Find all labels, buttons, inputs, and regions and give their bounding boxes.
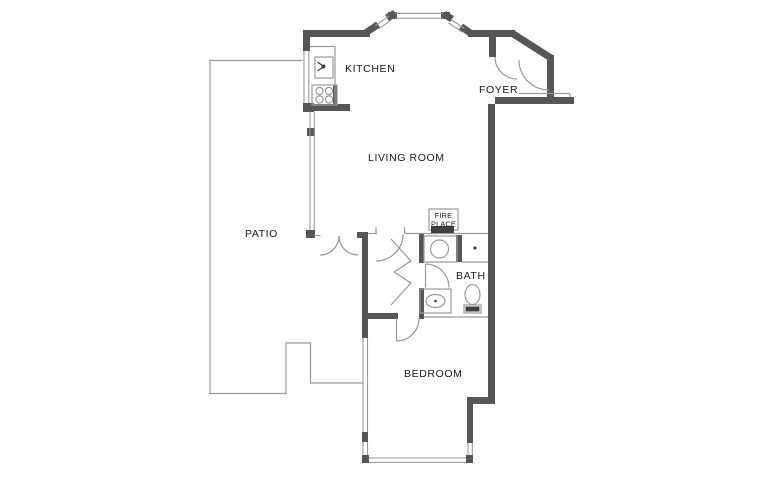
walls: [303, 30, 574, 463]
wall-bedroom-se-corner: [466, 455, 473, 463]
burner-3: [316, 96, 323, 103]
windows: [304, 51, 472, 462]
toilet-base-band: [466, 307, 480, 312]
window-end-block: [306, 230, 315, 238]
wall-bedroom-west-lower: [362, 432, 368, 442]
bay-window-right-inner: [449, 23, 463, 32]
wall-foyer-closet-stub: [489, 37, 496, 57]
wall-kitchen-west-corner: [303, 30, 310, 51]
bedroom-door-arc: [397, 319, 420, 342]
closet-dot-icon: [473, 246, 476, 249]
kitchen-fixtures: [310, 47, 337, 106]
wall-bedroom-notch-v: [467, 397, 473, 443]
vanity-drain-dot: [434, 300, 437, 303]
burner-1: [316, 87, 323, 94]
patio-french-door-arc-left: [320, 236, 339, 255]
kitchen-label: KITCHEN: [345, 63, 395, 75]
wall-foyer-step: [495, 97, 574, 104]
bay-window-right-outer: [451, 20, 465, 29]
burner-4: [325, 96, 332, 103]
interior-walls: [314, 94, 570, 318]
wall-bath-west-upper: [419, 234, 424, 263]
wall-hall-nw-corner: [357, 232, 368, 238]
bath-door-arc: [426, 264, 450, 288]
wall-hall-west: [362, 233, 368, 318]
patio-french-door-arc-right: [339, 236, 358, 255]
patio-label: PATIO: [245, 228, 278, 240]
wall-foyer-north: [468, 30, 515, 37]
floor-plan: KITCHEN FOYER LIVING ROOM PATIO BATH BED…: [0, 0, 768, 480]
wall-bedroom-sw-corner: [362, 455, 369, 463]
foyer-closet-door-arc: [495, 57, 517, 79]
burner-2: [325, 87, 332, 94]
wall-bedroom-west-upper: [362, 318, 368, 338]
floor-plan-canvas: KITCHEN FOYER LIVING ROOM PATIO BATH BED…: [0, 0, 768, 480]
foyer-label: FOYER: [479, 84, 518, 96]
wall-kitchen-north: [303, 30, 370, 37]
sink-faucet-line-2: [318, 67, 324, 71]
bath-label: BATH: [456, 270, 486, 282]
room-labels: KITCHEN FOYER LIVING ROOM PATIO BATH BED…: [245, 63, 518, 380]
wall-hall-south: [362, 313, 398, 319]
bay-wall-right-upper: [444, 14, 452, 19]
hall-bifold-closet-doors: [391, 239, 411, 305]
bay-window-left-outer: [376, 16, 390, 26]
bedroom-label: BEDROOM: [404, 368, 462, 380]
wall-foyer-east: [547, 55, 554, 97]
bay-wall-left-lower: [364, 25, 378, 35]
bay-window-left-inner: [379, 20, 393, 30]
bay-window: [364, 12, 471, 34]
wall-entry-diagonal: [511, 33, 551, 59]
fireplace-label-line2: PLACE: [431, 220, 456, 229]
wall-east: [488, 104, 495, 404]
toilet-icon: [465, 285, 480, 305]
living-room-label: LIVING ROOM: [368, 152, 445, 164]
shower-drain-circle: [431, 240, 449, 258]
sink-faucet-line-1: [318, 63, 324, 67]
entry-door-arc: [519, 60, 549, 90]
